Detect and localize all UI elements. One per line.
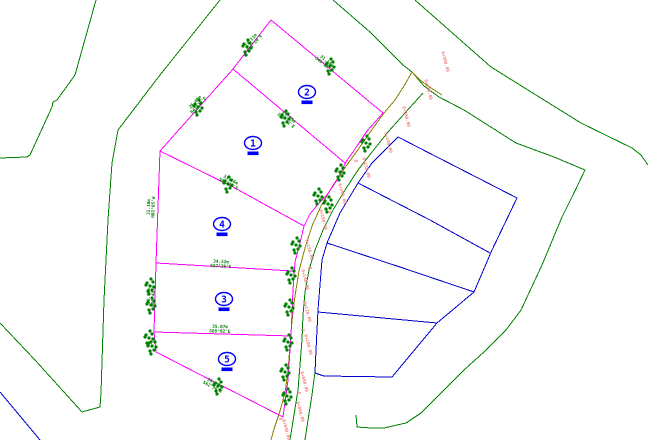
road-station-label[interactable]: 0+060.00: [294, 401, 305, 423]
tree-symbol-icon[interactable]: [341, 166, 344, 169]
tree-symbol-icon[interactable]: [154, 345, 157, 348]
tree-symbol-icon[interactable]: [285, 310, 288, 313]
tree-symbol-icon[interactable]: [317, 187, 320, 190]
tree-symbol-icon[interactable]: [149, 352, 152, 355]
tree-symbol-icon[interactable]: [150, 344, 153, 347]
tree-symbol-icon[interactable]: [366, 145, 369, 148]
tree-symbol-icon[interactable]: [292, 269, 295, 272]
tree-symbol-icon[interactable]: [363, 149, 366, 152]
tree-symbol-icon[interactable]: [324, 207, 327, 210]
contour-line-west[interactable]: [0, 0, 96, 158]
tree-symbol-icon[interactable]: [316, 194, 319, 197]
tree-symbol-icon[interactable]: [283, 304, 286, 307]
tree-symbol-icon[interactable]: [367, 137, 370, 140]
tree-symbol-icon[interactable]: [283, 370, 286, 373]
dimension-label[interactable]: 31.10mS49°55'E: [314, 52, 337, 74]
parcel-area-text-blob: [217, 233, 228, 237]
tree-symbol-icon[interactable]: [360, 140, 363, 143]
tree-symbol-icon[interactable]: [322, 201, 325, 204]
tree-symbol-icon[interactable]: [289, 395, 292, 398]
tree-symbol-icon[interactable]: [290, 242, 293, 245]
dimension-label[interactable]: 39.04mS62°30'E: [202, 376, 226, 395]
tree-symbol-icon[interactable]: [342, 171, 345, 174]
blue-block-division-1[interactable]: [358, 183, 490, 253]
cad-canvas[interactable]: 18.21mN42°10'E26.40mN41°25'E29.35mS50°12…: [0, 0, 648, 440]
tree-symbol-icon[interactable]: [285, 272, 288, 275]
tree-symbol-icon[interactable]: [318, 198, 321, 201]
tree-symbol-icon[interactable]: [148, 329, 151, 332]
blue-block-division-2[interactable]: [327, 243, 474, 292]
tree-symbol-icon[interactable]: [286, 313, 289, 316]
tree-symbol-icon[interactable]: [148, 349, 151, 352]
tree-symbol-icon[interactable]: [281, 375, 284, 378]
tree-symbol-icon[interactable]: [320, 195, 323, 198]
road-station-label[interactable]: 0+080.00: [298, 371, 309, 393]
parcel-area-text-blob: [222, 368, 233, 372]
dimension-bearing-text: S87°30'E: [210, 263, 232, 270]
road-station-label[interactable]: 0+040.00: [280, 419, 291, 440]
tree-symbol-icon[interactable]: [289, 336, 292, 339]
tree-symbol-icon[interactable]: [151, 280, 154, 283]
site-plan-drawing: 18.21mN42°10'E26.40mN41°25'E29.35mS50°12…: [0, 0, 648, 440]
tree-symbol-icon[interactable]: [281, 393, 284, 396]
tree-symbol-icon[interactable]: [285, 348, 288, 351]
tree-symbol-icon[interactable]: [336, 175, 339, 178]
tree-symbol-icon[interactable]: [337, 178, 340, 181]
tree-symbol-icon[interactable]: [286, 340, 289, 343]
tree-symbol-icon[interactable]: [150, 332, 153, 335]
tree-symbol-icon[interactable]: [290, 341, 293, 344]
tree-symbol-icon[interactable]: [288, 281, 291, 284]
road-east-boundary-curve[interactable]: [333, 0, 585, 428]
tree-symbol-icon[interactable]: [314, 199, 317, 202]
tree-symbol-icon[interactable]: [368, 142, 371, 145]
tree-symbol-icon[interactable]: [195, 113, 198, 116]
road-edge-green-inner[interactable]: [290, 93, 423, 440]
tree-symbol-icon[interactable]: [294, 243, 297, 246]
tree-symbol-icon[interactable]: [148, 311, 151, 314]
tree-symbol-icon[interactable]: [151, 337, 154, 340]
tree-symbol-icon[interactable]: [146, 343, 149, 346]
road-station-label[interactable]: 0+100.00: [302, 334, 313, 356]
tree-symbol-icon[interactable]: [296, 247, 299, 250]
tree-symbol-icon[interactable]: [295, 236, 298, 239]
tree-symbol-icon[interactable]: [339, 163, 342, 166]
tree-symbol-icon[interactable]: [217, 377, 220, 380]
tree-symbol-icon[interactable]: [149, 277, 152, 280]
tree-symbol-icon[interactable]: [297, 239, 300, 242]
dimension-bearing-text: N02°05'W: [150, 196, 157, 218]
tree-symbol-icon[interactable]: [287, 371, 290, 374]
tree-symbol-icon[interactable]: [143, 335, 146, 338]
tree-symbol-icon[interactable]: [287, 333, 290, 336]
road-station-label[interactable]: 0+280.00: [422, 79, 433, 101]
tree-symbol-icon[interactable]: [289, 273, 292, 276]
tree-symbol-icon[interactable]: [279, 369, 282, 372]
tree-symbol-icon[interactable]: [284, 363, 287, 366]
tree-symbol-icon[interactable]: [151, 307, 154, 310]
blue-block-division-3[interactable]: [318, 312, 437, 323]
tree-symbol-icon[interactable]: [319, 190, 322, 193]
tree-symbol-icon[interactable]: [244, 53, 247, 56]
tree-symbol-icon[interactable]: [330, 203, 333, 206]
tree-symbol-icon[interactable]: [291, 277, 294, 280]
tree-symbol-icon[interactable]: [288, 344, 291, 347]
tree-symbol-icon[interactable]: [364, 141, 367, 144]
tree-symbol-icon[interactable]: [340, 174, 343, 177]
tree-symbol-icon[interactable]: [312, 193, 315, 196]
tree-symbol-icon[interactable]: [329, 198, 332, 201]
dimension-bearing-text: N01°48'W: [150, 285, 157, 307]
tree-symbol-icon[interactable]: [292, 248, 295, 251]
tree-symbol-icon[interactable]: [285, 374, 288, 377]
dimension-bearing-text: S88°02'E: [209, 328, 231, 335]
tree-symbol-icon[interactable]: [152, 348, 155, 351]
tree-symbol-icon[interactable]: [285, 394, 288, 397]
road-station-label[interactable]: 0+220.00: [360, 157, 371, 179]
tree-symbol-icon[interactable]: [283, 399, 286, 402]
tree-symbol-icon[interactable]: [284, 345, 287, 348]
tree-symbol-icon[interactable]: [198, 109, 201, 112]
parcel-outer-boundary[interactable]: [154, 20, 383, 417]
tree-symbol-icon[interactable]: [327, 195, 330, 198]
tree-symbol-icon[interactable]: [282, 124, 285, 127]
dimension-label[interactable]: 35.07mS88°02'E: [209, 324, 231, 335]
tree-symbol-icon[interactable]: [147, 308, 150, 311]
tree-symbol-icon[interactable]: [282, 378, 285, 381]
tree-symbol-icon[interactable]: [338, 170, 341, 173]
tree-symbol-icon[interactable]: [362, 146, 365, 149]
tree-symbol-icon[interactable]: [326, 202, 329, 205]
tree-symbol-icon[interactable]: [147, 336, 150, 339]
parcel-number-text[interactable]: 4: [219, 219, 225, 230]
road-station-label[interactable]: 0+160.00: [303, 239, 314, 261]
tree-symbol-icon[interactable]: [287, 398, 290, 401]
tree-symbol-icon[interactable]: [315, 202, 318, 205]
parcel-number-text[interactable]: 2: [304, 87, 310, 98]
tree-symbol-icon[interactable]: [293, 274, 296, 277]
tree-symbol-icon[interactable]: [365, 134, 368, 137]
parcel-number-text[interactable]: 5: [224, 354, 230, 365]
tree-symbol-icon[interactable]: [288, 298, 291, 301]
tree-symbol-icon[interactable]: [153, 340, 156, 343]
tree-symbol-icon[interactable]: [144, 283, 147, 286]
tree-symbol-icon[interactable]: [282, 339, 285, 342]
tree-symbol-icon[interactable]: [328, 206, 331, 209]
dimension-label[interactable]: 22.18mN02°05'W: [146, 196, 157, 218]
tree-symbol-icon[interactable]: [287, 278, 290, 281]
tree-symbol-icon[interactable]: [289, 309, 292, 312]
tree-symbol-icon[interactable]: [287, 305, 290, 308]
parcel-area-text-blob: [219, 308, 230, 312]
parcel-area-text-blob: [248, 152, 259, 156]
tree-symbol-icon[interactable]: [288, 390, 291, 393]
contour-line-southwest[interactable]: [0, 323, 82, 412]
parcel-number-text[interactable]: 1: [250, 138, 256, 149]
blue-corner-line-southwest[interactable]: [0, 392, 40, 440]
dimension-label[interactable]: 20.65mN01°48'W: [146, 285, 157, 307]
tree-symbol-icon[interactable]: [284, 402, 287, 405]
tree-symbol-icon[interactable]: [290, 266, 293, 269]
tree-symbol-icon[interactable]: [286, 387, 289, 390]
tree-symbol-icon[interactable]: [286, 366, 289, 369]
parcel-area-text-blob: [302, 101, 313, 105]
dimension-label[interactable]: 34.52mS87°30'E: [210, 258, 232, 270]
boundary-line-northeast[interactable]: [415, 0, 648, 165]
tree-symbol-icon[interactable]: [334, 169, 337, 172]
tree-symbol-icon[interactable]: [224, 187, 227, 190]
tree-symbol-icon[interactable]: [298, 244, 301, 247]
road-station-label[interactable]: 0+300.00: [439, 51, 450, 73]
tree-symbol-icon[interactable]: [225, 190, 228, 193]
tree-symbol-icon[interactable]: [293, 251, 296, 254]
tree-symbol-icon[interactable]: [291, 306, 294, 309]
tree-symbol-icon[interactable]: [290, 301, 293, 304]
parcel-number-text[interactable]: 3: [221, 294, 227, 305]
